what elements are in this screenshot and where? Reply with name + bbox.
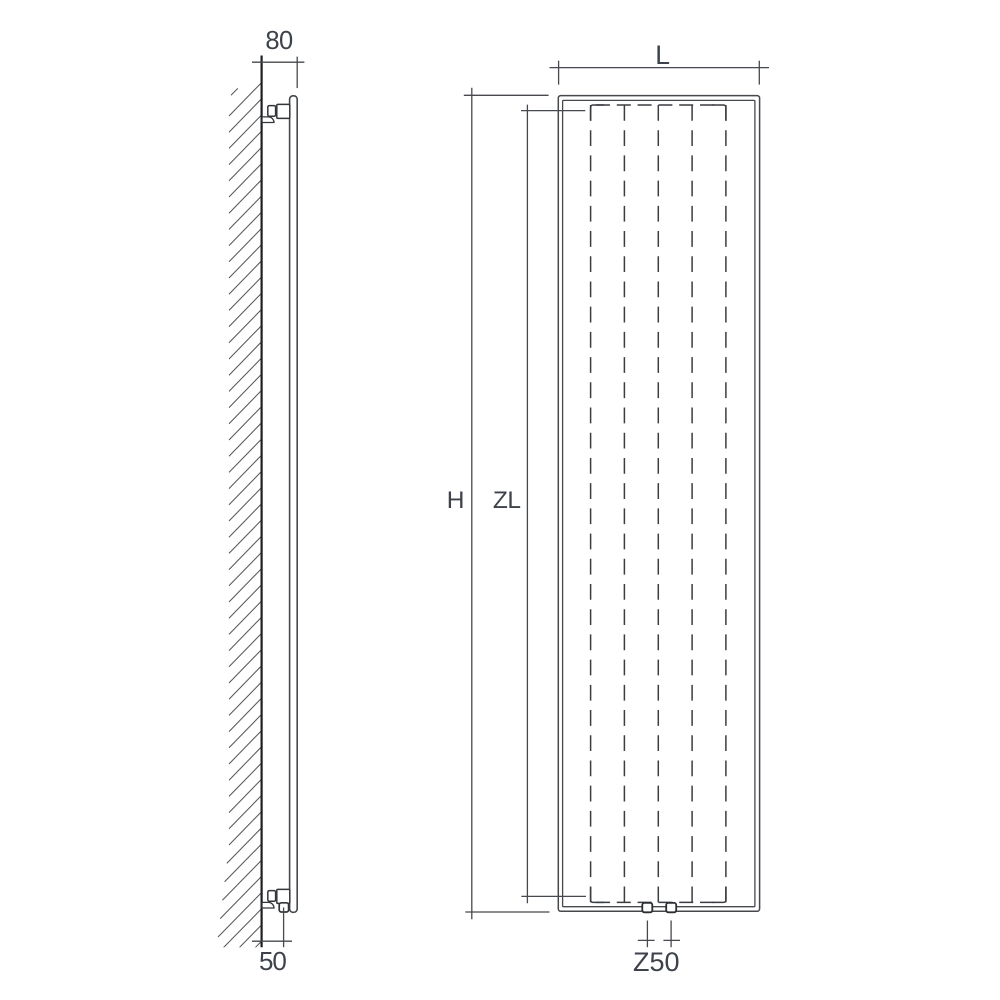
svg-text:80: 80 <box>265 27 293 55</box>
svg-text:ZL: ZL <box>493 487 521 514</box>
svg-text:H: H <box>447 487 465 514</box>
svg-text:Z50: Z50 <box>633 947 680 977</box>
svg-text:L: L <box>655 40 670 70</box>
svg-text:50: 50 <box>259 946 286 976</box>
